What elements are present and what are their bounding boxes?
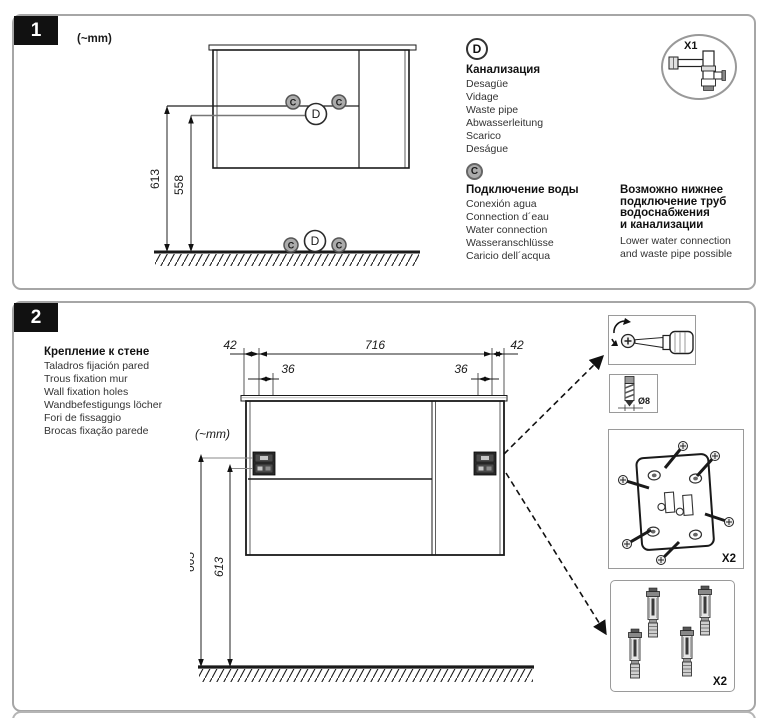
label-line: Fori de fissaggio	[44, 412, 162, 425]
drill-bit-icon: Ø8	[610, 375, 656, 411]
wall-fixation-title: Крепление к стене	[44, 346, 162, 358]
marker-d-letter: D	[311, 234, 320, 248]
note-text-line: and waste pipe possible	[620, 248, 732, 261]
note-text-line: Lower water connection	[620, 235, 732, 248]
label-line: Vidage	[466, 91, 543, 104]
label-line: Water connection	[466, 224, 579, 237]
siphon-badge: X1	[661, 34, 737, 100]
wall-anchors-icon	[611, 581, 733, 690]
screwdriver-step-box	[608, 315, 696, 365]
screwdriver-icon	[609, 316, 694, 363]
anchor-count-label: X2	[713, 676, 727, 688]
dim-613-label: 613	[148, 169, 162, 189]
waste-pipe-text-block: D Канализация Desagüe Vidage Waste pipe …	[466, 38, 543, 156]
wall-fixation-drawing: 42 716 42 36 36	[190, 338, 620, 686]
label-line: Abwasserleitung	[466, 117, 543, 130]
label-line: Brocas fixação parede	[44, 425, 162, 438]
dim-36-right-label: 36	[454, 362, 468, 376]
label-line: Conexión agua	[466, 198, 579, 211]
plate-count-label: X2	[722, 553, 736, 565]
cabinet-outline	[241, 396, 507, 556]
marker-c-letter: C	[288, 240, 295, 250]
note-title-line: и канализации	[620, 220, 732, 232]
dim-613-label: 613	[212, 557, 226, 577]
step-2-panel: 2 Крепление к стене Taladros fijación pa…	[12, 301, 756, 712]
next-page-edge	[12, 711, 756, 718]
instruction-page: 1 (~mm)	[0, 0, 768, 718]
dimension-558: 558	[172, 116, 194, 253]
lower-connection-note: Возможно нижнее подключение труб водосна…	[620, 185, 732, 260]
wall-fixation-text-block: Крепление к стене Taladros fijación pare…	[44, 346, 162, 438]
wall-plate-box: X2	[608, 429, 744, 569]
connection-heights-drawing: 613 558 C C D	[148, 40, 468, 270]
water-connection-title: Подключение воды	[466, 184, 579, 196]
step-2-number: 2	[14, 303, 58, 332]
marker-c-letter: C	[336, 97, 343, 107]
label-line: Deságue	[466, 143, 543, 156]
units-label-step1: (~mm)	[77, 33, 112, 45]
connection-markers-floor: C C D	[284, 231, 346, 253]
callout-arrow-to-screw	[504, 356, 603, 454]
dim-558-label: 558	[172, 175, 186, 195]
dimension-top-chain: 42 716 42	[223, 338, 524, 357]
siphon-trap-icon	[667, 49, 733, 95]
marker-c-letter: C	[290, 97, 297, 107]
label-line: Desagüe	[466, 78, 543, 91]
dim-665-label: 665	[190, 552, 197, 572]
callout-arrow-to-anchors	[506, 473, 606, 634]
label-line: Wasseranschlüsse	[466, 237, 579, 250]
wall-anchors-box: X2	[610, 580, 735, 692]
floor-line	[154, 252, 420, 266]
water-connection-text-block: C Подключение воды Conexión agua Connect…	[466, 163, 579, 263]
dim-42-right-label: 42	[510, 338, 524, 352]
mounting-bracket-left	[253, 452, 275, 475]
note-title-line: Возможно нижнее	[620, 185, 732, 197]
step-1-number: 1	[14, 16, 58, 45]
drill-bit-box: Ø8	[609, 374, 658, 413]
label-line: Wandbefestigungs löcher	[44, 399, 162, 412]
mounting-bracket-right	[474, 452, 496, 475]
label-line: Caricio dell´acqua	[466, 250, 579, 263]
label-line: Taladros fijación pared	[44, 360, 162, 373]
label-line: Scarico	[466, 130, 543, 143]
marker-d-letter: D	[312, 107, 321, 121]
dimension-36-left: 36	[248, 362, 295, 381]
label-line: Waste pipe	[466, 104, 543, 117]
dim-716-label: 716	[365, 338, 385, 352]
step-1-panel: 1 (~mm)	[12, 14, 756, 290]
label-line: Trous fixation mur	[44, 373, 162, 386]
label-line: Wall fixation holes	[44, 386, 162, 399]
dim-36-left-label: 36	[281, 362, 295, 376]
waste-pipe-marker-icon: D	[466, 38, 488, 60]
marker-c-letter: C	[336, 240, 343, 250]
label-line: Connection d´eau	[466, 211, 579, 224]
floor-line	[198, 667, 534, 682]
drill-diameter-label: Ø8	[638, 396, 650, 406]
wall-plate-icon	[609, 430, 742, 567]
dim-42-left-label: 42	[223, 338, 237, 352]
waste-pipe-title: Канализация	[466, 64, 543, 76]
water-connection-marker-icon: C	[466, 163, 483, 180]
dimension-613: 613	[148, 106, 170, 252]
